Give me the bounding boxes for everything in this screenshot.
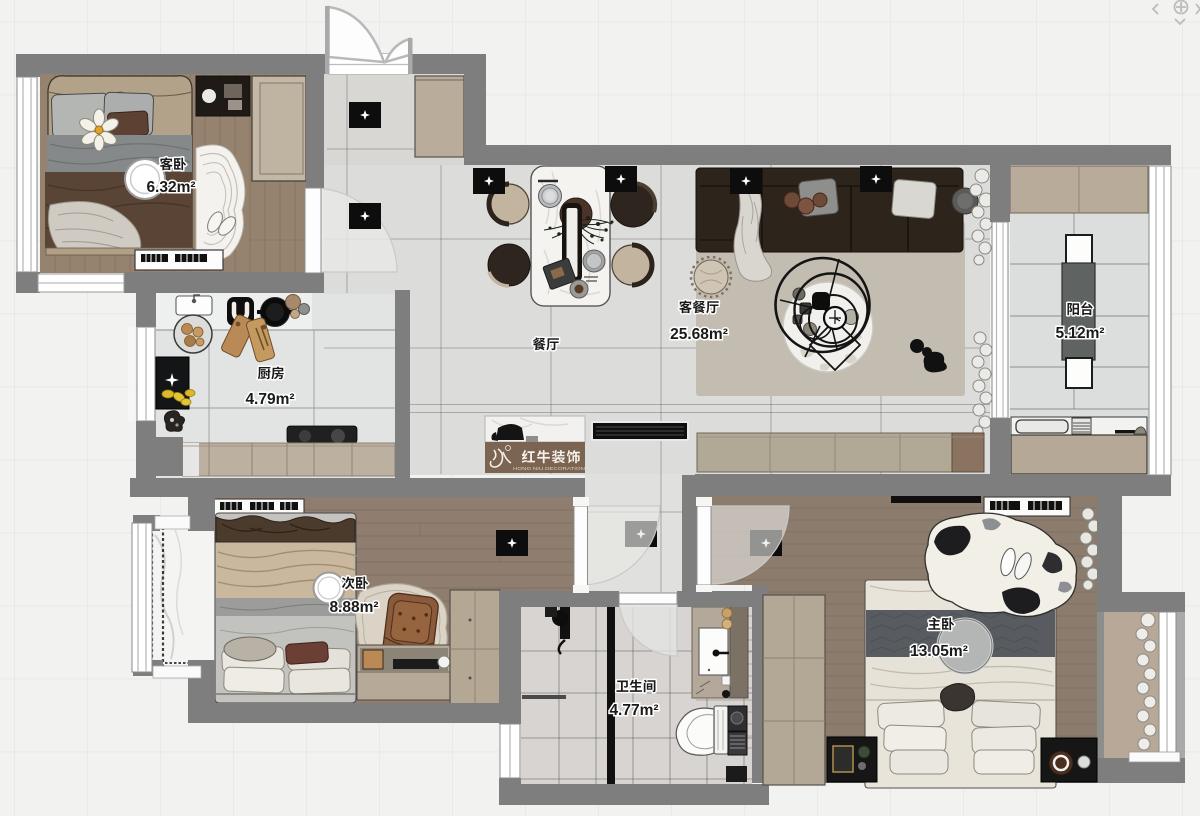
svg-text:4.79m²: 4.79m² [245, 391, 294, 408]
svg-text:HONG NIU DECORATION: HONG NIU DECORATION [513, 466, 585, 471]
svg-text:13.05m²: 13.05m² [910, 643, 968, 660]
svg-text:25.68m²: 25.68m² [670, 326, 728, 343]
svg-text:5.12m²: 5.12m² [1055, 325, 1104, 342]
svg-text:4.77m²: 4.77m² [609, 702, 658, 719]
svg-text:6.32m²: 6.32m² [146, 179, 195, 196]
svg-text:8.88m²: 8.88m² [329, 599, 378, 616]
